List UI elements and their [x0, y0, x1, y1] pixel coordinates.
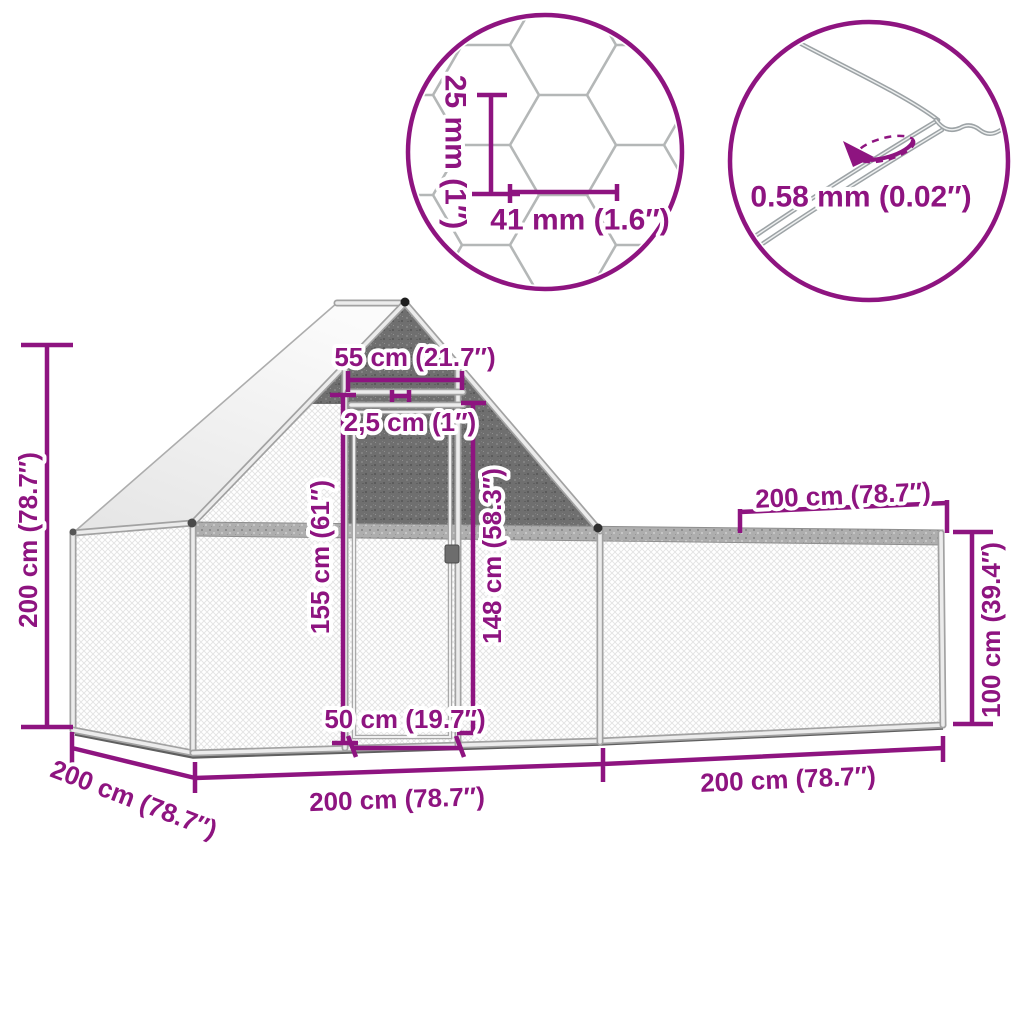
- wire-detail-callout: [730, 22, 1015, 300]
- door-width-label: 50 cm (19.7″): [324, 704, 485, 734]
- mesh-height-label: 25 mm (1″): [439, 75, 472, 229]
- ridge-width-label: 55 cm (21.7″): [334, 342, 495, 372]
- tube-thickness-label: 2,5 cm (1″): [344, 407, 476, 437]
- left-side-panel: [73, 523, 193, 753]
- run-height-label: 100 cm (39.4″): [976, 542, 1006, 718]
- chicken-coop-diagram: 25 mm (1″) 41 mm (1.6″) 0.58 mm (0.02″) …: [0, 0, 1024, 1024]
- run-panel: [600, 531, 943, 741]
- mesh-width-label: 41 mm (1.6″): [490, 204, 669, 237]
- door-latch: [445, 545, 459, 563]
- ridge-apex-cap: [401, 298, 410, 307]
- frame-height-label: 148 cm (58.3″): [477, 468, 507, 644]
- product-dimension-diagram: 25 mm (1″) 41 mm (1.6″) 0.58 mm (0.02″) …: [0, 0, 1024, 1024]
- gable-right-cap: [594, 524, 603, 533]
- total-height-label: 200 cm (78.7″): [13, 452, 43, 628]
- back-eave-cap: [70, 529, 77, 536]
- right-section-length-label: 200 cm (78.7″): [700, 760, 877, 798]
- door-height-label: 155 cm (61″): [305, 480, 335, 634]
- run-top-length-label: 200 cm (78.7″): [755, 476, 932, 514]
- wire-diameter-label: 0.58 mm (0.02″): [750, 181, 971, 214]
- eave-corner-cap: [188, 519, 197, 528]
- left-section-length-label: 200 cm (78.7″): [309, 781, 486, 817]
